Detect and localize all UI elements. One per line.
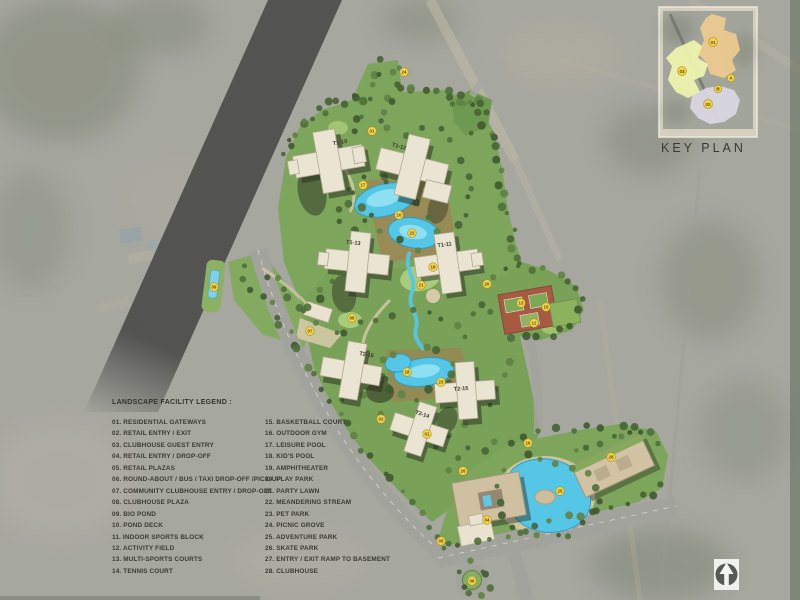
legend-item: 26. SKATE PARK xyxy=(265,543,390,554)
svg-text:12: 12 xyxy=(532,321,537,326)
legend-item: 28. CLUBHOUSE xyxy=(265,566,390,577)
facility-marker: 01 xyxy=(368,127,377,136)
svg-text:08: 08 xyxy=(350,316,355,321)
legend-item: 01. RESIDENTIAL GATEWAYS xyxy=(112,417,281,428)
facility-marker: 08 xyxy=(348,314,357,323)
svg-text:25: 25 xyxy=(558,489,563,494)
legend-item: 10. POND DECK xyxy=(112,520,281,531)
legend-item: 05. RETAIL PLAZAS xyxy=(112,463,281,474)
facility-marker: 18 xyxy=(403,368,412,377)
tower-label: T2-15 xyxy=(454,386,469,393)
facility-marker: 07 xyxy=(306,327,315,336)
svg-text:21: 21 xyxy=(419,283,424,288)
svg-text:20: 20 xyxy=(485,282,490,287)
legend-item: 12. ACTIVITY FIELD xyxy=(112,543,281,554)
legend-item: 14. TENNIS COURT xyxy=(112,566,281,577)
legend-item: 04. RETAIL ENTRY / DROP-OFF xyxy=(112,451,281,462)
legend-column-1: 01. RESIDENTIAL GATEWAYS02. RETAIL ENTRY… xyxy=(112,417,281,577)
north-arrow-icon xyxy=(714,559,739,590)
svg-text:07: 07 xyxy=(308,329,313,334)
legend-item: 17. LEISURE POOL xyxy=(265,440,390,451)
legend-item: 25. ADVENTURE PARK xyxy=(265,532,390,543)
svg-text:16: 16 xyxy=(526,441,531,446)
facility-marker: 23 xyxy=(437,378,446,387)
key-zone-label: 03 xyxy=(679,69,685,74)
svg-text:06: 06 xyxy=(470,579,475,584)
legend-item: 27. ENTRY / EXIT RAMP TO BASEMENT xyxy=(265,554,390,565)
facility-marker: 05 xyxy=(437,537,446,546)
legend-item: 22. MEANDERING STREAM xyxy=(265,497,390,508)
facility-marker: 25 xyxy=(556,487,565,496)
legend-title: LANDSCAPE FACILITY LEGEND : xyxy=(112,399,432,406)
svg-text:05: 05 xyxy=(439,539,444,544)
masterplan-canvas: T1-10 T1-12 T1-13 T1-11 T2-16 T2-15 xyxy=(0,0,800,600)
svg-text:19: 19 xyxy=(431,265,436,270)
legend-item: 02. RETAIL ENTRY / EXIT xyxy=(112,428,281,439)
legend-item: 08. CLUBHOUSE PLAZA xyxy=(112,497,281,508)
facility-marker: 06 xyxy=(468,577,477,586)
svg-text:15: 15 xyxy=(544,305,549,310)
legend-item: 11. INDOOR SPORTS BLOCK xyxy=(112,532,281,543)
facility-marker: 22 xyxy=(408,229,417,238)
legend-item: 15. BASKETBALL COURT xyxy=(265,417,390,428)
facility-marker: 12 xyxy=(530,319,539,328)
facility-marker: 04 xyxy=(483,516,492,525)
facility-marker: 17 xyxy=(359,181,368,190)
facility-marker: 01 xyxy=(423,430,432,439)
legend-item: 18. KID'S POOL xyxy=(265,451,390,462)
legend-item: 06. ROUND-ABOUT / BUS / TAXI DROP-OFF /P… xyxy=(112,474,281,485)
legend-item: 24. PICNIC GROVE xyxy=(265,520,390,531)
key-zone-label: 02 xyxy=(705,102,711,107)
legend-item: 09. BIO POND xyxy=(112,509,281,520)
facility-marker: 13 xyxy=(517,299,526,308)
svg-text:04: 04 xyxy=(485,518,490,523)
key-plan: 01 02 03 A B KEY PLAN xyxy=(659,7,757,155)
svg-text:01: 01 xyxy=(425,432,430,437)
svg-text:26: 26 xyxy=(461,469,466,474)
legend-item: 23. PET PARK xyxy=(265,509,390,520)
legend-item: 20. PLAY PARK xyxy=(265,474,390,485)
svg-text:23: 23 xyxy=(439,380,444,385)
landscape-legend: LANDSCAPE FACILITY LEGEND : 01. RESIDENT… xyxy=(112,399,432,417)
facility-marker: 09 xyxy=(210,283,219,292)
legend-item: 16. OUTDOOR GYM xyxy=(265,428,390,439)
svg-text:13: 13 xyxy=(519,301,524,306)
legend-item: 03. CLUBHOUSE GUEST ENTRY xyxy=(112,440,281,451)
svg-text:24: 24 xyxy=(402,70,407,75)
facility-marker: 28 xyxy=(607,453,616,462)
svg-text:09: 09 xyxy=(212,285,217,290)
facility-marker: 21 xyxy=(417,281,426,290)
svg-text:01: 01 xyxy=(370,129,375,134)
facility-marker: 24 xyxy=(400,68,409,77)
facility-marker: 19 xyxy=(429,263,438,272)
facility-marker: 10 xyxy=(395,211,404,220)
key-zone-label: 01 xyxy=(710,40,716,45)
svg-text:22: 22 xyxy=(410,231,415,236)
facility-marker: 16 xyxy=(524,439,533,448)
key-plan-title: KEY PLAN xyxy=(661,141,746,155)
svg-text:10: 10 xyxy=(397,213,402,218)
svg-text:17: 17 xyxy=(361,183,366,188)
svg-text:28: 28 xyxy=(609,455,614,460)
facility-marker: 15 xyxy=(542,303,551,312)
legend-item: 21. PARTY LAWN xyxy=(265,486,390,497)
legend-item: 07. COMMUNITY CLUBHOUSE ENTRY / DROP-OFF xyxy=(112,486,281,497)
legend-item: 13. MULTI-SPORTS COURTS xyxy=(112,554,281,565)
facility-marker: 20 xyxy=(483,280,492,289)
facility-marker: 26 xyxy=(459,467,468,476)
legend-item: 19. AMPHITHEATER xyxy=(265,463,390,474)
legend-column-2: 15. BASKETBALL COURT16. OUTDOOR GYM17. L… xyxy=(265,417,390,577)
svg-text:18: 18 xyxy=(405,370,410,375)
